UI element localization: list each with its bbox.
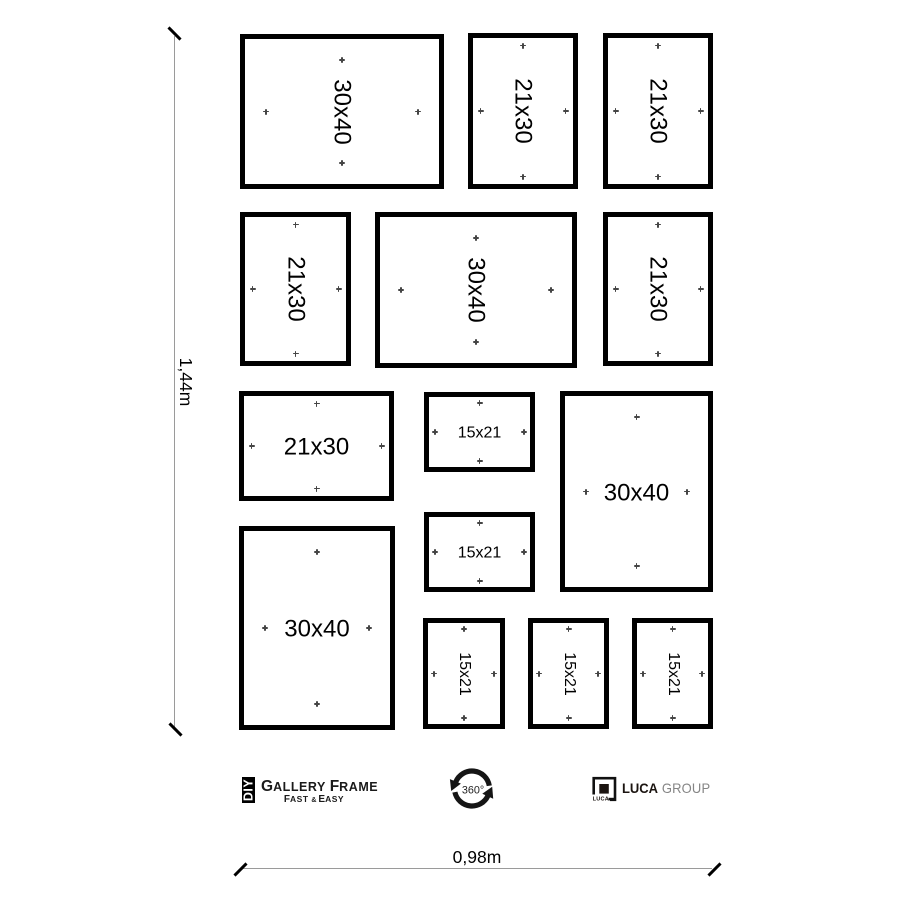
svg-text:360°: 360° <box>462 784 484 796</box>
svg-text:LUCA: LUCA <box>593 796 609 802</box>
